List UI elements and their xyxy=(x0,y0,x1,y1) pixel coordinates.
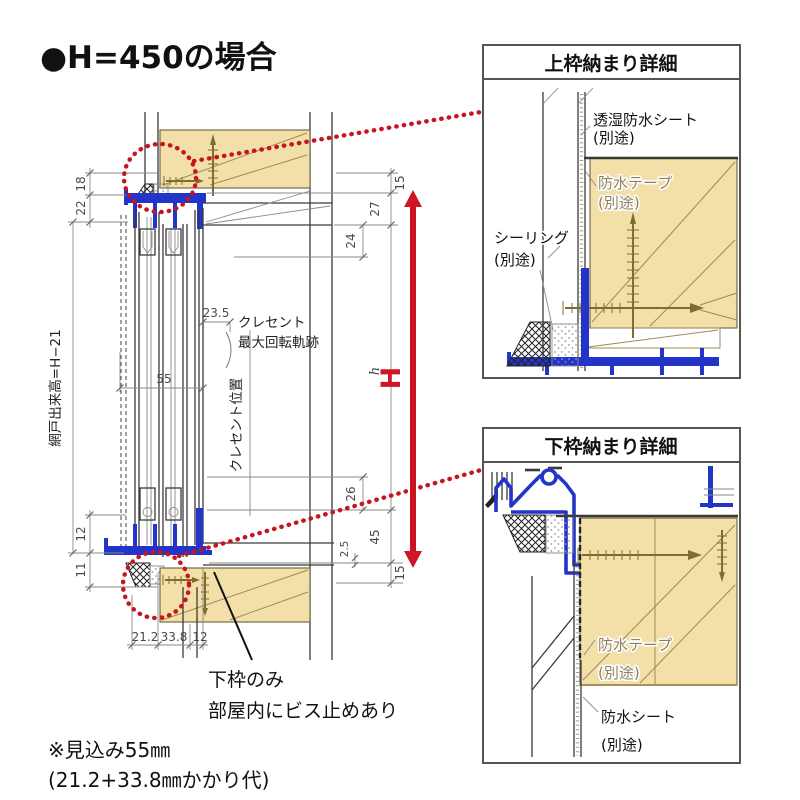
frame-head-blue xyxy=(124,189,206,229)
dim-55: 55 xyxy=(156,372,171,386)
dim-screen-height: 網戸出来高=H−21 xyxy=(47,329,64,446)
dim-22: 22 xyxy=(74,200,88,215)
detail-bottom-backer xyxy=(546,515,573,553)
main-section-view xyxy=(104,112,334,660)
dim-27: 27 xyxy=(368,201,382,216)
technical-drawing-page: ●H=450の場合 xyxy=(0,0,800,800)
detail-bottom-title: 下枠納まり詳細 xyxy=(544,435,677,458)
dim-2-5: 2.5 xyxy=(339,541,351,558)
dim-21-2: 21.2 xyxy=(132,630,159,644)
label-tape-bottom-1: 防水テープ xyxy=(598,636,672,654)
dim-12-left: 12 xyxy=(74,526,88,541)
label-sheet-top-1: 透湿防水シート xyxy=(593,111,698,129)
label-sheet-bottom-1: 防水シート xyxy=(601,708,676,726)
detail-top-title: 上枠納まり詳細 xyxy=(544,52,677,75)
label-sheet-top-2: (別途) xyxy=(593,129,635,147)
H-arrow-head-top xyxy=(404,190,422,207)
dim-23-5: 23.5 xyxy=(203,306,230,320)
detail-bottom-frame: 下枠納まり詳細 xyxy=(483,428,740,763)
dim-33-8: 33.8 xyxy=(161,630,188,644)
detail-top-frame: 上枠納まり詳細 xyxy=(483,45,740,378)
label-sheet-bottom-2: (別途) xyxy=(601,736,643,754)
lintel-wood xyxy=(160,130,310,196)
page-title: ●H=450の場合 xyxy=(40,40,277,76)
label-seal-1: シーリング xyxy=(494,229,569,247)
label-tape-top-1: 防水テープ xyxy=(598,174,672,192)
screw-note-line-2: 部屋内にビス止めあり xyxy=(208,700,398,722)
label-tape-top-2: (別途) xyxy=(598,194,640,212)
dim-H-total: H xyxy=(376,367,407,390)
dim-11: 11 xyxy=(74,562,88,577)
dim-18: 18 xyxy=(74,176,88,191)
footnote-line-1: ※見込み55㎜ xyxy=(48,738,170,762)
footnote-line-2: (21.2+33.8㎜かかり代) xyxy=(48,768,269,792)
crescent-swing-arc xyxy=(226,332,231,368)
screw-note-line-1: 下枠のみ xyxy=(208,669,284,691)
window-section-drawing: ●H=450の場合 xyxy=(0,0,800,800)
exterior-fin-blue xyxy=(708,466,713,508)
label-tape-bottom-2: (別途) xyxy=(598,664,640,682)
dim-26: 26 xyxy=(344,486,358,501)
dim-24: 24 xyxy=(344,233,358,248)
detail-bottom-wood xyxy=(580,518,737,685)
dim-45: 45 xyxy=(368,529,382,544)
footnote: ※見込み55㎜ (21.2+33.8㎜かかり代) xyxy=(48,738,269,792)
dim-15-top: 15 xyxy=(393,175,407,190)
dim-15-bottom: 15 xyxy=(393,565,407,580)
crescent-position-label: クレセント位置 xyxy=(229,378,245,473)
label-seal-2: (別途) xyxy=(494,251,536,269)
crescent-track-label-1: クレセント xyxy=(238,315,306,331)
detail-top-backer xyxy=(552,324,578,366)
dim-12-bottom: 12 xyxy=(192,630,207,644)
